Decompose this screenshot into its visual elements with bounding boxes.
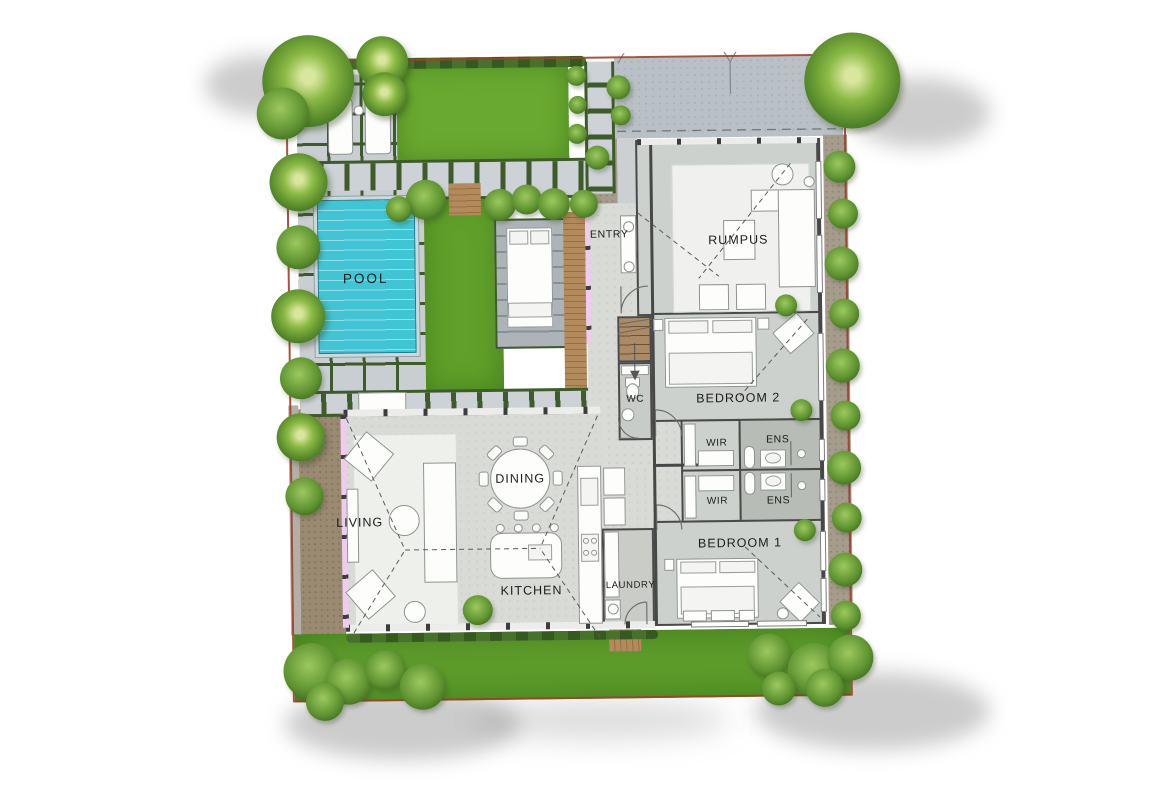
- ens2-label: ENS: [767, 494, 791, 506]
- plant: [585, 146, 609, 170]
- laundry-label: LAUNDRY: [606, 579, 656, 591]
- dining-label: DINING: [495, 471, 545, 486]
- plant: [823, 150, 855, 182]
- bedroom1-label: BEDROOM 1: [698, 535, 782, 550]
- entry-label: ENTRY: [590, 228, 629, 240]
- site-plan: POOL: [284, 51, 856, 710]
- plant: [538, 188, 570, 220]
- plant: [828, 198, 858, 228]
- plant: [484, 189, 516, 221]
- plant: [831, 600, 861, 630]
- plant: [606, 75, 630, 99]
- wir1-label: WIR: [706, 438, 727, 449]
- plant: [569, 96, 587, 114]
- plant: [828, 552, 862, 586]
- rumpus-label: RUMPUS: [708, 233, 768, 248]
- wir2-label: WIR: [707, 496, 728, 507]
- bedroom2-label: BEDROOM 2: [696, 390, 780, 405]
- plant: [566, 66, 586, 86]
- ens1-label: ENS: [766, 433, 790, 445]
- pool-label: POOL: [343, 271, 389, 287]
- plant: [794, 519, 816, 541]
- plant: [567, 124, 587, 144]
- plant: [775, 294, 797, 316]
- plant: [832, 502, 862, 532]
- plant: [827, 450, 861, 484]
- living-label: LIVING: [336, 515, 383, 530]
- shrub: [747, 633, 792, 678]
- kitchen-label: KITCHEN: [501, 583, 563, 598]
- plant: [830, 400, 860, 430]
- plant: [829, 298, 859, 328]
- plant: [790, 399, 812, 421]
- floor-plan-canvas: POOL: [0, 0, 1153, 810]
- plant: [611, 105, 631, 125]
- linework-overlay: [284, 51, 856, 710]
- plant: [824, 246, 858, 280]
- plant: [826, 348, 860, 382]
- wc-label: WC: [626, 394, 644, 405]
